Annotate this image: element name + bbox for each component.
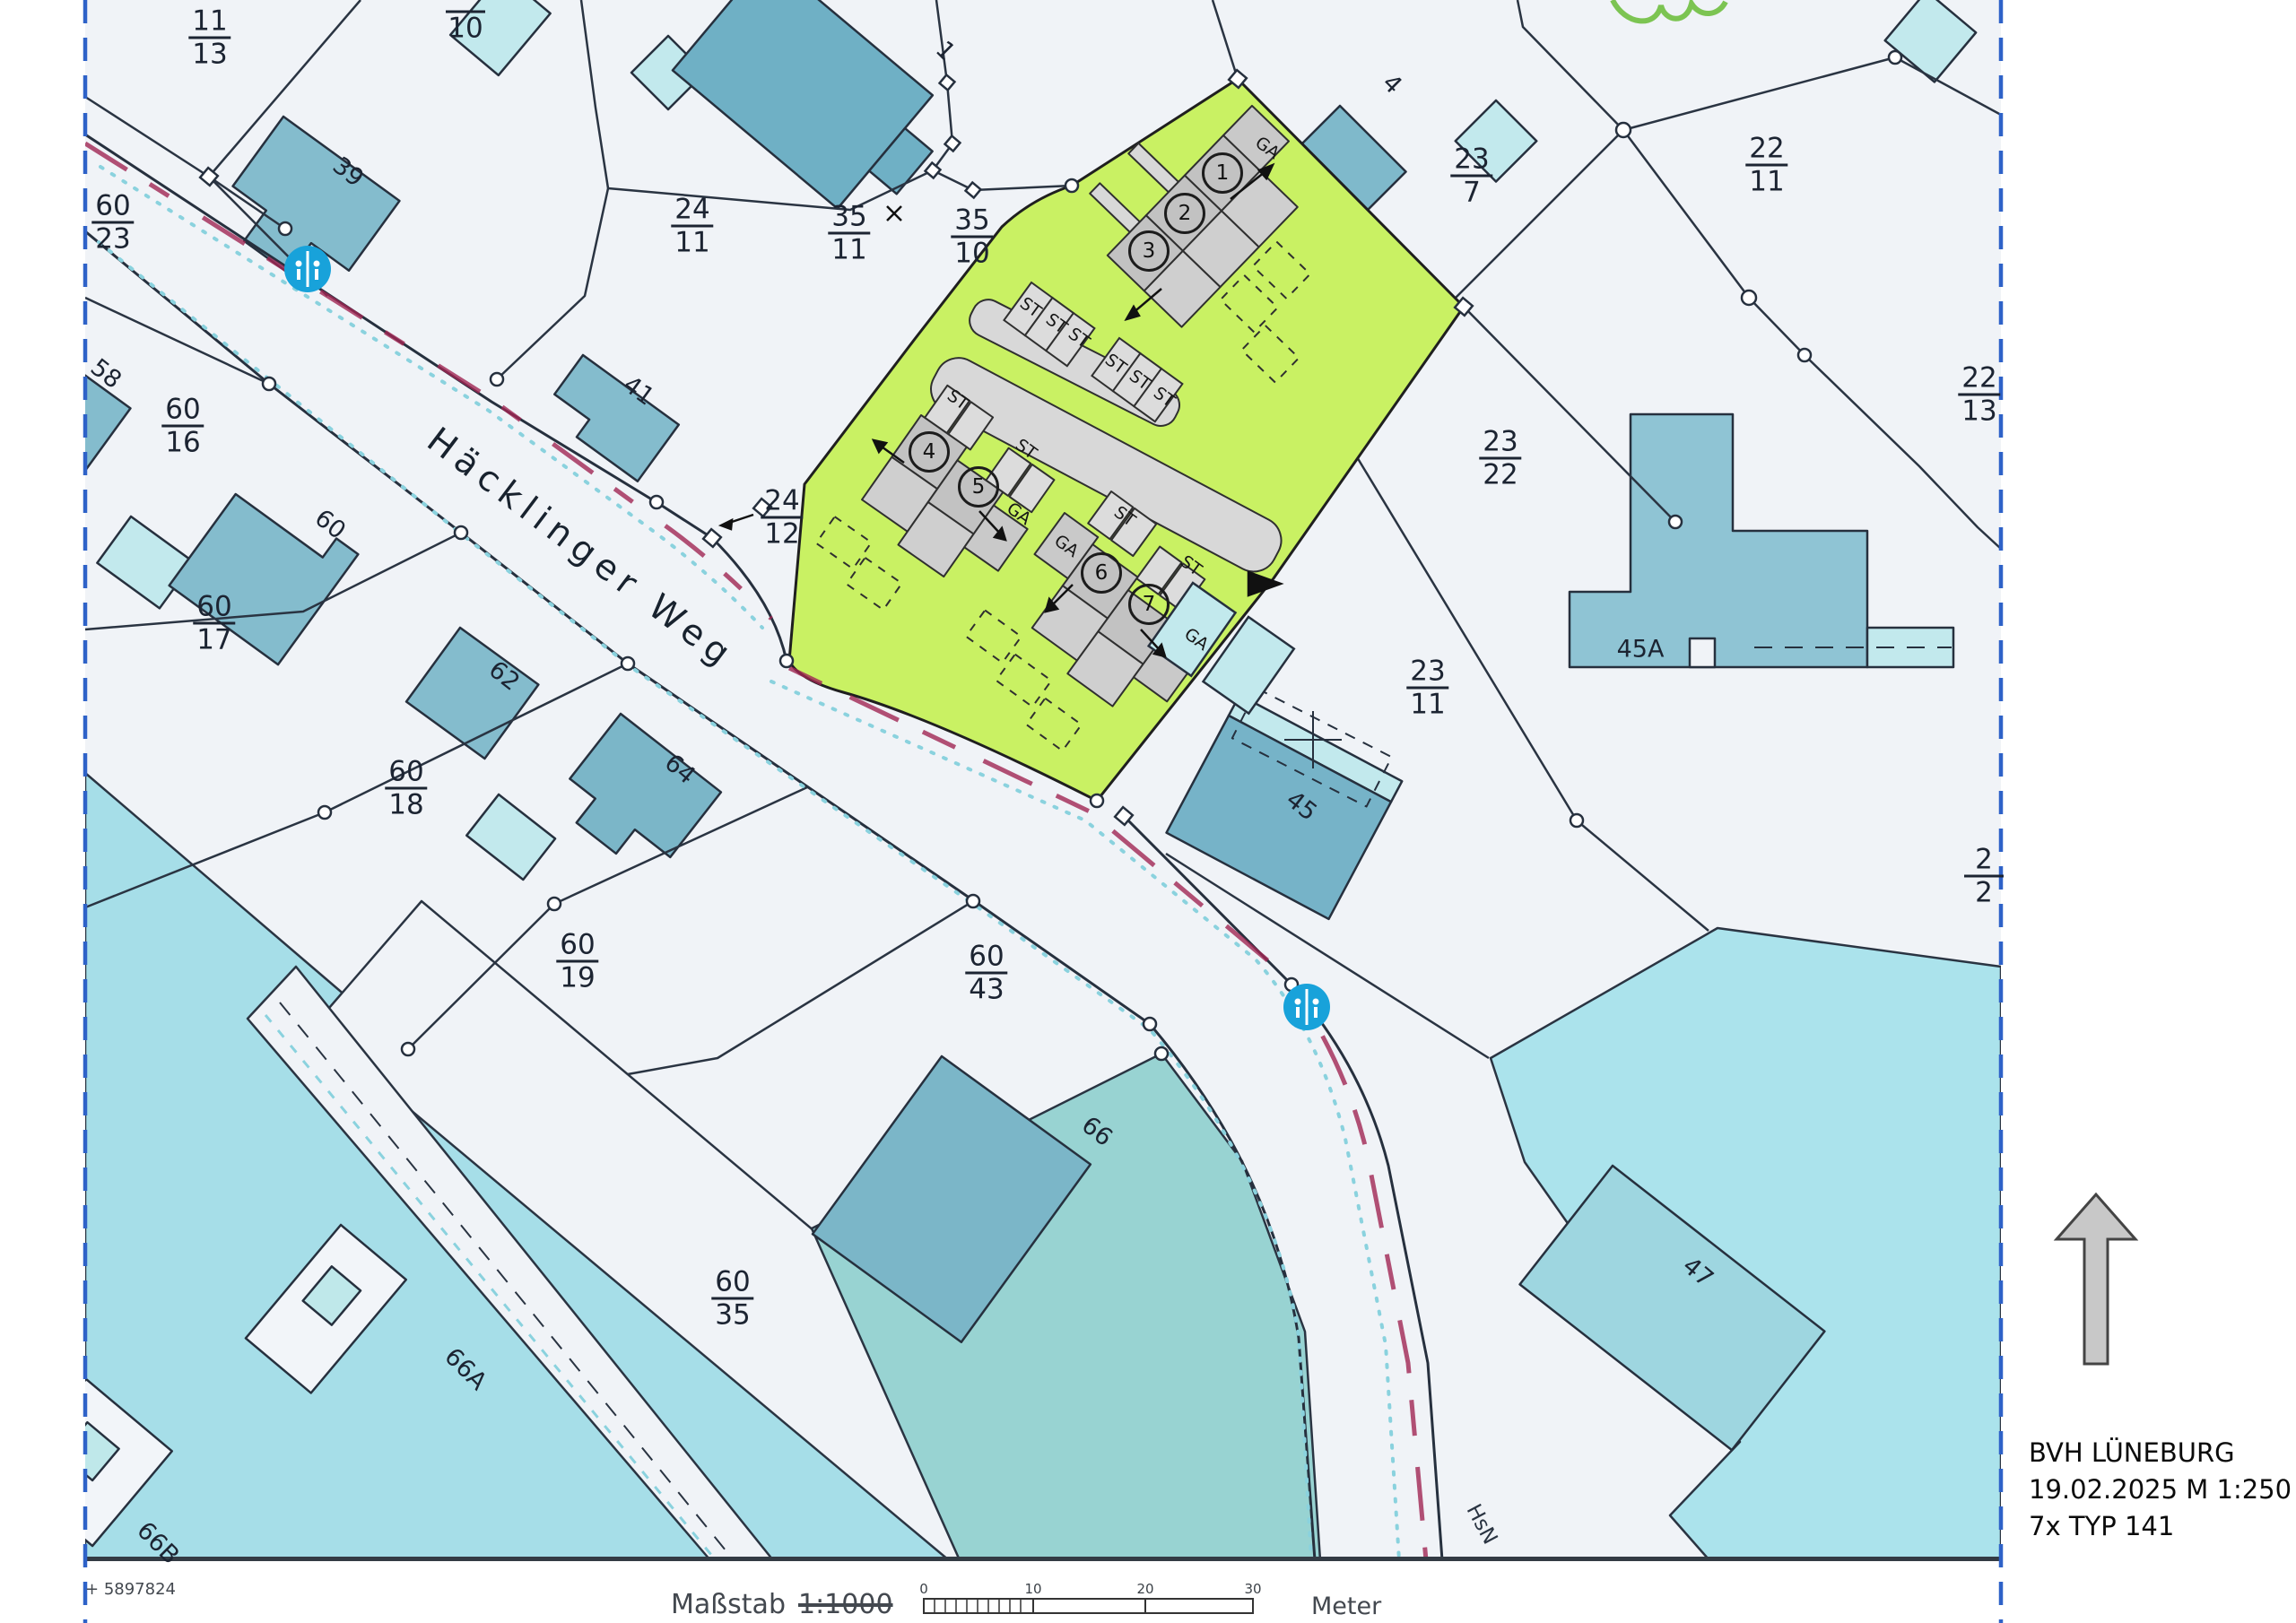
parcel-denominator: 10 <box>951 239 993 269</box>
parcel-label: 2213 <box>1958 363 2000 427</box>
parcel-label: 3511 <box>828 202 870 265</box>
sheet-reference-number: + 5897824 <box>85 1580 176 1599</box>
parcel-numerator: 60 <box>161 395 204 428</box>
parcel-label: 2412 <box>761 486 803 550</box>
parcel-denominator: 13 <box>1958 396 2000 427</box>
parcel-numerator: 23 <box>1479 427 1521 460</box>
parking-cell-label: ST <box>944 386 972 414</box>
parcel-denominator: 22 <box>1479 460 1521 490</box>
house-number-label: 62 <box>483 655 525 697</box>
parcel-numerator: 60 <box>193 592 235 625</box>
house-number-label: 4 <box>1377 69 1407 100</box>
parking-cell-label: ST <box>1110 502 1139 531</box>
house-number-label: 66A <box>439 1342 491 1395</box>
parcel-numerator: 11 <box>188 6 230 39</box>
title-line3: 7x TYP 141 <box>2029 1508 2292 1545</box>
parcel-label: 2411 <box>671 195 713 258</box>
unit-number-badge: 3 <box>1128 230 1170 272</box>
parcel-denominator: 23 <box>91 224 134 255</box>
title-line1: BVH LÜNEBURG <box>2029 1435 2292 1471</box>
house-number-label: 41 <box>618 370 659 411</box>
scale-unit-label: Meter <box>1311 1593 1381 1620</box>
parcel-label: 2311 <box>1406 656 1448 720</box>
scale-label: Maßstab <box>671 1589 786 1620</box>
garage-cell-label: GA <box>1251 133 1283 163</box>
parking-cell-label: ST <box>1177 551 1205 580</box>
parcel-numerator: 35 <box>828 202 870 235</box>
house-number-label: 66B <box>131 1516 184 1569</box>
garage-cell-label: GA <box>1003 499 1034 529</box>
house-number-label: 1 <box>930 36 961 66</box>
title-block: BVH LÜNEBURG 19.02.2025 M 1:250 7x TYP 1… <box>2029 1435 2292 1545</box>
garage-cell-label: GA <box>1180 624 1212 655</box>
parking-cell-label: ST <box>1126 366 1154 395</box>
parcel-denominator: 18 <box>385 790 427 820</box>
parcel-label: 2322 <box>1479 427 1521 490</box>
parking-cell-label: ST <box>1042 309 1071 338</box>
parcel-numerator: 60 <box>91 191 134 224</box>
parcel-denominator: 10 <box>446 13 485 44</box>
house-number-label: 58 <box>85 353 126 395</box>
unit-number-badge: 6 <box>1081 552 1122 594</box>
parcel-denominator: 16 <box>161 428 204 458</box>
parcel-numerator: 24 <box>761 486 803 519</box>
house-number-label: 39 <box>327 152 369 193</box>
parcel-label: 10 <box>446 11 485 44</box>
reference-prefix: + <box>85 1580 99 1599</box>
house-number-label: 66 <box>1076 1111 1118 1152</box>
parcel-label: 3510 <box>951 205 993 269</box>
map-labels-layer: 1113106023241135113510237221122132322231… <box>0 0 2296 1623</box>
parcel-label: 6017 <box>193 592 235 655</box>
parcel-numerator: 23 <box>1450 144 1492 178</box>
parking-cell-label: ST <box>1101 350 1130 378</box>
parcel-denominator: 43 <box>965 975 1007 1005</box>
unit-number-badge: 1 <box>1202 152 1243 194</box>
scale-tick-30: 30 <box>1244 1581 1261 1597</box>
parcel-denominator: 11 <box>1745 167 1787 197</box>
scale-tick-0: 0 <box>919 1581 928 1597</box>
scale-tick-20: 20 <box>1136 1581 1153 1597</box>
parcel-denominator: 11 <box>828 235 870 265</box>
parcel-numerator: 22 <box>1958 363 2000 396</box>
unit-number-badge: 2 <box>1164 193 1205 234</box>
parcel-label: 6043 <box>965 942 1007 1005</box>
parcel-numerator: 2 <box>1964 845 2004 878</box>
scale-value-struck: 1:1000 <box>798 1589 893 1620</box>
parcel-denominator: 19 <box>556 963 598 994</box>
parcel-numerator: 23 <box>1406 656 1448 690</box>
parking-cell-label: ST <box>1016 293 1045 322</box>
scale-tick-10: 10 <box>1024 1581 1041 1597</box>
unit-number-badge: 4 <box>909 431 950 473</box>
parcel-label: 1113 <box>188 6 230 70</box>
parcel-numerator: 60 <box>556 930 598 963</box>
site-plan-page: 1113106023241135113510237221122132322231… <box>0 0 2296 1623</box>
parcel-numerator: 60 <box>385 757 427 790</box>
parking-cell-label: ST <box>1012 435 1040 464</box>
unit-number-badge: 5 <box>958 466 999 508</box>
parcel-denominator: 17 <box>193 625 235 655</box>
reference-value: 5897824 <box>104 1580 176 1599</box>
parcel-label: 6016 <box>161 395 204 458</box>
parcel-label: 6019 <box>556 930 598 994</box>
scale-caption: Maßstab1:1000 <box>671 1589 893 1620</box>
house-number-label: 45A <box>1617 636 1665 664</box>
parcel-numerator: 35 <box>951 205 993 239</box>
parcel-label: 6018 <box>385 757 427 820</box>
parking-cell-label: ST <box>1150 383 1178 412</box>
parcel-denominator: 12 <box>761 519 803 550</box>
unit-number-badge: 7 <box>1128 584 1170 625</box>
parcel-numerator: 22 <box>1745 134 1787 167</box>
parcel-label: 6035 <box>711 1267 753 1331</box>
parcel-label: 6023 <box>91 191 134 255</box>
parcel-denominator: 2 <box>1964 878 2004 908</box>
parcel-numerator: 24 <box>671 195 713 228</box>
house-number-label: 60 <box>309 504 351 545</box>
parcel-label: 237 <box>1450 144 1492 208</box>
house-number-label: 64 <box>659 749 700 790</box>
garage-cell-label: GA <box>1050 531 1082 561</box>
parcel-denominator: 11 <box>1406 690 1448 720</box>
parcel-numerator: 60 <box>965 942 1007 975</box>
street-annotation-label: HsN <box>1462 1500 1502 1548</box>
title-line2: 19.02.2025 M 1:250 <box>2029 1471 2292 1508</box>
house-number-label: 45 <box>1281 785 1322 827</box>
parcel-denominator: 7 <box>1450 178 1492 208</box>
parcel-label: 22 <box>1964 845 2004 908</box>
parcel-denominator: 35 <box>711 1300 753 1331</box>
parcel-label: 2211 <box>1745 134 1787 197</box>
parcel-numerator: 60 <box>711 1267 753 1300</box>
parcel-denominator: 13 <box>188 39 230 70</box>
house-number-label: 47 <box>1677 1252 1718 1293</box>
parking-cell-label: ST <box>1065 324 1093 352</box>
parcel-denominator: 11 <box>671 228 713 258</box>
